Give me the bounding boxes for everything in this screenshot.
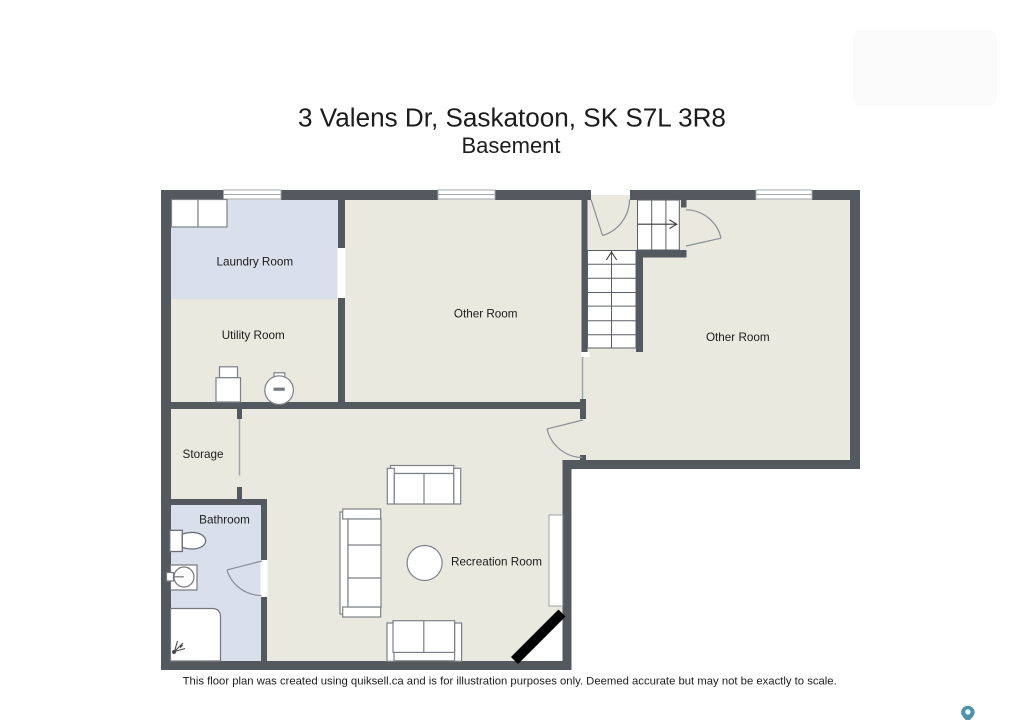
svg-text:Laundry Room: Laundry Room bbox=[216, 256, 293, 269]
svg-text:Bathroom: Bathroom bbox=[199, 514, 250, 527]
svg-text:Basement: Basement bbox=[461, 133, 560, 158]
svg-text:Storage: Storage bbox=[183, 448, 224, 461]
svg-text:This floor plan was created us: This floor plan was created using quikse… bbox=[183, 675, 837, 687]
svg-text:Other Room: Other Room bbox=[706, 331, 770, 344]
svg-text:Other Room: Other Room bbox=[454, 308, 518, 321]
svg-text:Utility Room: Utility Room bbox=[222, 329, 285, 342]
svg-text:Recreation Room: Recreation Room bbox=[451, 556, 542, 569]
svg-text:3 Valens Dr, Saskatoon, SK S7L: 3 Valens Dr, Saskatoon, SK S7L 3R8 bbox=[298, 103, 726, 133]
